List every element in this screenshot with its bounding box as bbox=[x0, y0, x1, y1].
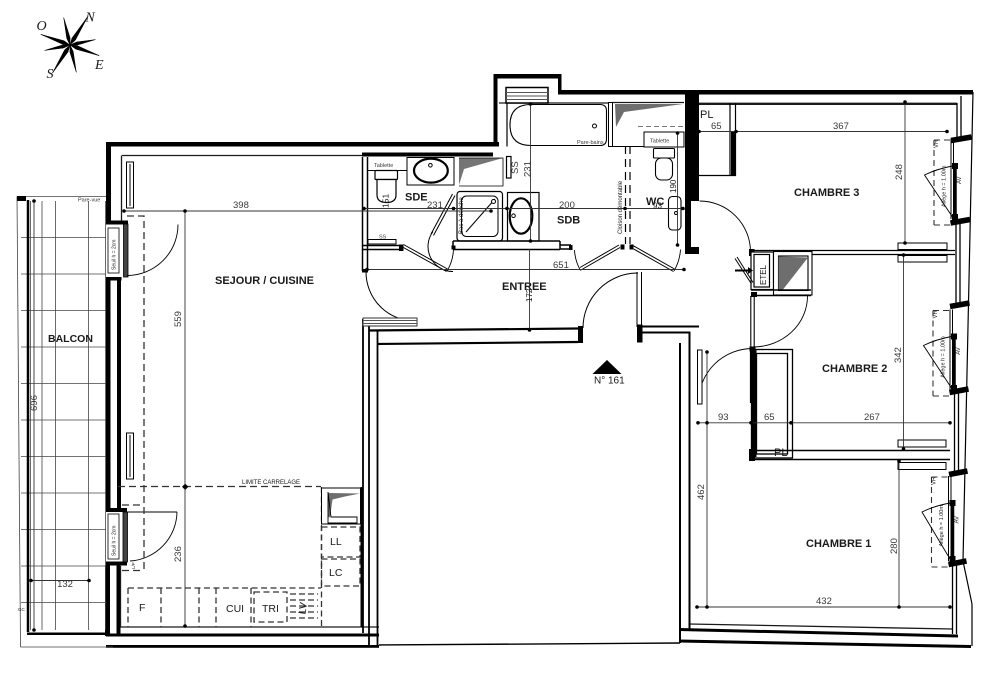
svg-text:65: 65 bbox=[711, 121, 722, 132]
svg-text:231: 231 bbox=[523, 161, 534, 177]
svg-text:Tablette: Tablette bbox=[374, 163, 393, 169]
svg-text:Seuil h = 2cm: Seuil h = 2cm bbox=[112, 240, 118, 270]
svg-text:PL: PL bbox=[774, 447, 787, 459]
svg-text:E: E bbox=[94, 58, 104, 73]
svg-text:SDB: SDB bbox=[557, 215, 580, 227]
svg-text:L/P: L/P bbox=[131, 562, 136, 569]
svg-text:151: 151 bbox=[381, 194, 391, 208]
svg-text:200: 200 bbox=[559, 200, 575, 211]
svg-text:VR: VR bbox=[932, 476, 938, 485]
svg-text:BALCON: BALCON bbox=[48, 333, 93, 345]
svg-text:F: F bbox=[139, 602, 145, 614]
svg-text:Tablette: Tablette bbox=[650, 139, 669, 145]
svg-text:VR: VR bbox=[933, 309, 939, 318]
svg-text:AV: AV bbox=[957, 176, 963, 184]
svg-text:O: O bbox=[37, 19, 47, 34]
svg-text:267: 267 bbox=[864, 412, 880, 423]
svg-text:65: 65 bbox=[764, 412, 775, 423]
svg-text:CHAMBRE 2: CHAMBRE 2 bbox=[822, 363, 887, 375]
svg-text:Allège h = 1.00m: Allège h = 1.00m bbox=[942, 165, 948, 207]
svg-text:651: 651 bbox=[553, 260, 569, 271]
svg-text:N: N bbox=[84, 11, 95, 26]
svg-text:AV: AV bbox=[955, 516, 961, 524]
svg-text:190: 190 bbox=[669, 179, 678, 193]
svg-text:TRI: TRI bbox=[262, 603, 279, 615]
svg-text:N° 161: N° 161 bbox=[594, 376, 625, 387]
svg-text:398: 398 bbox=[233, 200, 249, 211]
svg-text:LV: LV bbox=[296, 602, 310, 616]
svg-text:GC: GC bbox=[18, 607, 26, 612]
svg-text:CHAMBRE 3: CHAMBRE 3 bbox=[794, 187, 859, 199]
svg-text:S: S bbox=[47, 67, 54, 82]
svg-text:342: 342 bbox=[893, 347, 904, 363]
svg-text:280: 280 bbox=[889, 538, 900, 554]
svg-text:696: 696 bbox=[29, 395, 40, 411]
svg-text:432: 432 bbox=[816, 596, 832, 607]
svg-text:VR: VR bbox=[934, 139, 940, 148]
svg-text:SDE: SDE bbox=[405, 192, 428, 204]
svg-text:LL: LL bbox=[330, 536, 342, 548]
svg-text:Pare-bains: Pare-bains bbox=[577, 140, 604, 146]
svg-text:231: 231 bbox=[427, 200, 443, 211]
svg-text:Allège h = 1.00m: Allège h = 1.00m bbox=[941, 336, 947, 378]
svg-text:Pare-vue: Pare-vue bbox=[78, 198, 100, 204]
svg-text:SS: SS bbox=[510, 161, 521, 174]
svg-text:559: 559 bbox=[173, 311, 184, 327]
svg-text:CUI: CUI bbox=[226, 603, 244, 615]
svg-text:172: 172 bbox=[525, 288, 534, 302]
svg-text:LIMITE CARRELAGE: LIMITE CARRELAGE bbox=[242, 480, 300, 486]
svg-text:236: 236 bbox=[173, 546, 184, 562]
svg-text:SEJOUR / CUISINE: SEJOUR / CUISINE bbox=[215, 275, 314, 287]
svg-text:93: 93 bbox=[653, 202, 662, 211]
svg-text:93: 93 bbox=[718, 412, 729, 423]
svg-text:Cloison démontable: Cloison démontable bbox=[618, 180, 624, 234]
svg-text:Allège h = 1.00m: Allège h = 1.00m bbox=[939, 505, 945, 547]
svg-text:248: 248 bbox=[894, 164, 905, 180]
svg-text:ETEL: ETEL bbox=[759, 264, 768, 285]
svg-text:AV: AV bbox=[956, 347, 962, 355]
svg-text:PL: PL bbox=[700, 109, 713, 121]
svg-text:Seuil h = 2cm: Seuil h = 2cm bbox=[112, 526, 118, 556]
svg-text:CHAMBRE 1: CHAMBRE 1 bbox=[806, 538, 871, 550]
svg-text:Bac à douche: Bac à douche bbox=[459, 197, 465, 234]
svg-text:367: 367 bbox=[833, 121, 849, 132]
svg-text:462: 462 bbox=[696, 484, 707, 500]
svg-text:LC: LC bbox=[329, 567, 343, 579]
